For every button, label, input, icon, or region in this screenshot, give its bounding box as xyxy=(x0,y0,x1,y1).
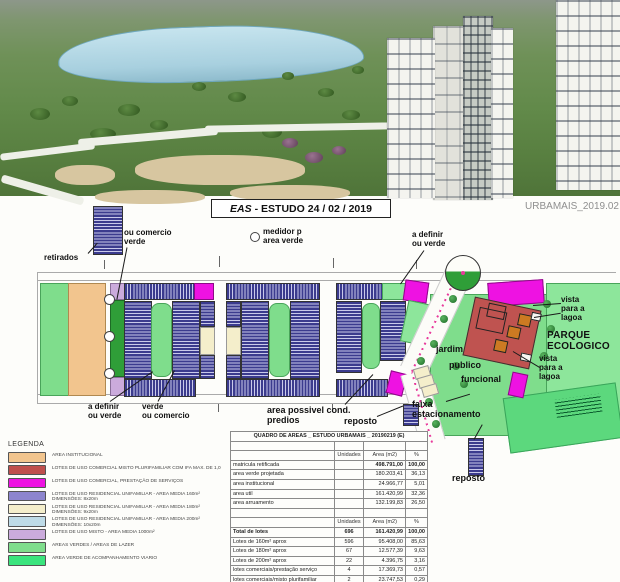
annotation-ou-comercio-verde: ou comercio verde xyxy=(124,229,172,247)
row-label: Lotes de 200m² aprox xyxy=(231,556,335,566)
lot-column-hatched xyxy=(172,301,200,379)
areas-table: QUADRO DE AREAS _ ESTUDO URBAMAIS _ 2019… xyxy=(230,431,428,582)
legend-item: LOTES DE USO MISTO - AREA MEDIA 1000m² xyxy=(8,529,223,542)
green-area xyxy=(40,283,70,396)
annotation-vista-lagoa-2: vista para a lagoa xyxy=(539,355,563,382)
dimension-tick xyxy=(218,404,219,412)
legend-item: LOTES DE USO RESIDENCIAL UNIFAMILIAR - A… xyxy=(8,516,223,529)
lot-column-hatched xyxy=(200,355,215,379)
commercial-lot xyxy=(194,283,214,300)
annotation-publico: publico xyxy=(449,360,481,370)
dimension-tick xyxy=(104,260,105,269)
lot-row-hatched xyxy=(124,283,196,300)
row-unidades xyxy=(334,460,364,470)
green-oval xyxy=(269,303,290,377)
roundabout-center-dot xyxy=(461,271,465,275)
row-unidades xyxy=(334,499,364,509)
legend-item: LOTES DE USO COMERCIAL MISTO PLURIFAMILI… xyxy=(8,465,223,478)
row-area: 17.369,73 xyxy=(364,566,406,576)
lot-row-hatched xyxy=(226,379,320,397)
medidor-icon xyxy=(104,294,115,305)
row-pct: 5,01 xyxy=(405,479,427,489)
roundabout xyxy=(445,255,481,291)
lot-row-hatched xyxy=(226,283,320,300)
row-unidades: 67 xyxy=(334,547,364,557)
legend-label: LOTES DE USO RESIDENCIAL UNIFAMILIAR - A… xyxy=(52,516,200,529)
annotation-retirados: retirados xyxy=(44,254,78,263)
green-oval xyxy=(151,303,172,377)
row-unidades xyxy=(334,479,364,489)
row-area: 498.791,00 xyxy=(364,460,406,470)
row-pct: 26,50 xyxy=(405,499,427,509)
green-oval xyxy=(362,303,380,369)
medidor-icon xyxy=(104,331,115,342)
annotation-faixa-estacionamento: faixa estacionamento xyxy=(412,399,481,419)
legend-items: AREA INSTITUCIONAL LOTES DE USO COMERCIA… xyxy=(8,452,223,568)
cream-lot xyxy=(200,327,215,355)
table-row: Lotes de 200m² aprox 22 4.396,75 3,16 xyxy=(231,556,428,566)
annotation-jardim: jardim xyxy=(436,344,463,354)
row-pct: 36,13 xyxy=(405,470,427,480)
row-area: 95.408,00 xyxy=(364,537,406,547)
leader-line xyxy=(377,406,403,417)
row-area: 161.420,99 xyxy=(364,527,406,537)
tree-icon xyxy=(192,82,206,91)
col-blank xyxy=(231,451,335,461)
row-pct: 85,63 xyxy=(405,537,427,547)
lot-column-hatched xyxy=(290,301,320,379)
legend-swatch xyxy=(8,491,46,502)
col-pct: % xyxy=(405,451,427,461)
legend: LEGENDA AREA INSTITUCIONAL LOTES DE USO … xyxy=(8,441,223,568)
legend-swatch xyxy=(8,516,46,527)
lot-column-hatched xyxy=(226,355,241,379)
legend-label: LOTES DE USO RESIDENCIAL UNIFAMILIAR - A… xyxy=(52,491,200,504)
row-area: 161.420,99 xyxy=(364,489,406,499)
tower-building xyxy=(491,28,513,198)
tree-icon xyxy=(342,110,360,120)
legend-swatch xyxy=(8,478,46,489)
col-pct: % xyxy=(405,518,427,528)
annotation-a-definir-top: a definir ou verde xyxy=(412,231,445,249)
legend-item: AREAS VERDES / AREAS DE LAZER xyxy=(8,542,223,555)
commercial-lot xyxy=(403,279,430,303)
row-label: area verde projetada xyxy=(231,470,335,480)
table-row: Lotes de 180m² aprox 67 12.577,39 9,63 xyxy=(231,547,428,557)
row-area: 12.577,39 xyxy=(364,547,406,557)
sand-area xyxy=(95,190,205,204)
tiny-note-block xyxy=(554,394,602,418)
annotation-reposto-right: reposto xyxy=(452,473,485,483)
row-pct: 100,00 xyxy=(405,527,427,537)
annotation-parque-ecologico: PARQUE ECOLOGICO xyxy=(547,330,610,352)
row-area: 24.966,77 xyxy=(364,479,406,489)
legend-swatch xyxy=(8,555,46,566)
lot-column-hatched xyxy=(336,301,362,373)
lagoon xyxy=(57,21,365,88)
row-area: 132.199,83 xyxy=(364,499,406,509)
row-unidades xyxy=(334,470,364,480)
col-area: Area (m2) xyxy=(364,451,406,461)
annotation-funcional: funcional xyxy=(461,374,501,384)
sheet-title: EAS - ESTUDO 24 / 02 / 2019 xyxy=(211,199,391,218)
legend-title: LEGENDA xyxy=(8,441,223,448)
dimension-tick xyxy=(219,256,220,267)
lot-column-hatched xyxy=(241,301,269,379)
row-area: 23.747,53 xyxy=(364,575,406,582)
legend-item: AREA INSTITUCIONAL xyxy=(8,452,223,465)
legend-label: LOTES DE USO COMERCIAL, PRESTAÇÃO DE SER… xyxy=(52,478,183,485)
reposto-lot-strip xyxy=(468,438,484,476)
table-row: area verde projetada 180.203,41 36,13 xyxy=(231,470,428,480)
legend-swatch xyxy=(8,465,46,476)
annotation-reposto-mid: reposto xyxy=(344,416,377,426)
annotation-area-possivel: area possivel cond. predios xyxy=(267,405,351,425)
medidor-icon xyxy=(104,368,115,379)
tree-icon xyxy=(30,108,50,120)
table-row: area util 161.420,99 32,36 xyxy=(231,489,428,499)
row-label: Lotes de 160m² aprox xyxy=(231,537,335,547)
row-pct: 100,00 xyxy=(405,460,427,470)
shrub-icon xyxy=(305,152,323,163)
shrub-icon xyxy=(332,146,346,155)
row-unidades: 596 xyxy=(334,537,364,547)
retirados-lot-strip xyxy=(93,206,123,255)
row-pct: 9,63 xyxy=(405,547,427,557)
tree-icon xyxy=(228,92,246,102)
legend-item: LOTES DE USO COMERCIAL, PRESTAÇÃO DE SER… xyxy=(8,478,223,491)
tower-building xyxy=(556,0,620,190)
table-spacer-row xyxy=(231,441,428,451)
legend-item: LOTES DE USO RESIDENCIAL UNIFAMILIAR - A… xyxy=(8,504,223,517)
tree-icon xyxy=(449,295,457,303)
sand-area xyxy=(135,155,305,185)
medidor-icon xyxy=(250,232,260,242)
table-section-2: Total de lotes 696 161.420,99 100,00 Lot… xyxy=(231,527,428,582)
institutional-area xyxy=(68,283,106,396)
lot-row-hatched xyxy=(336,283,384,300)
dimension-tick xyxy=(333,258,334,268)
urban-study-sheet: EAS - ESTUDO 24 / 02 / 2019 URBAMAIS_201… xyxy=(0,0,620,582)
col-unidades: Unidades xyxy=(334,518,364,528)
lot-column-hatched xyxy=(200,301,215,327)
orange-building xyxy=(506,325,521,339)
tower-building xyxy=(387,38,435,198)
annotation-medidor: medidor p area verde xyxy=(263,228,303,246)
annotation-vista-lagoa-1: vista para a lagoa xyxy=(561,296,585,323)
road-edge-line xyxy=(37,272,38,404)
tree-icon xyxy=(432,420,440,428)
legend-label: LOTES DE USO COMERCIAL MISTO PLURIFAMILI… xyxy=(52,465,221,472)
lot-row-hatched xyxy=(336,379,388,397)
row-label: matricula retificada xyxy=(231,460,335,470)
road xyxy=(205,122,390,132)
row-label: lotes comerciais/prestação serviço xyxy=(231,566,335,576)
title-eas: EAS xyxy=(230,203,252,215)
orange-building xyxy=(493,339,508,353)
row-pct: 32,36 xyxy=(405,489,427,499)
tree-icon xyxy=(352,66,364,74)
table-header-row: Unidades Area (m2) % xyxy=(231,451,428,461)
row-pct: 3,16 xyxy=(405,556,427,566)
lot-column-hatched xyxy=(124,301,152,379)
tree-icon xyxy=(62,96,78,106)
col-area: Area (m2) xyxy=(364,518,406,528)
table-row: area arruamento 132.199,83 26,50 xyxy=(231,499,428,509)
legend-swatch xyxy=(8,529,46,540)
legend-swatch xyxy=(8,504,46,515)
table-header-row: Unidades Area (m2) % xyxy=(231,518,428,528)
annotation-verde-ou-comercio: verde ou comercio xyxy=(142,403,190,421)
row-label: area util xyxy=(231,489,335,499)
tree-icon xyxy=(118,104,140,116)
row-label: Lotes de 180m² aprox xyxy=(231,547,335,557)
row-area: 180.203,41 xyxy=(364,470,406,480)
row-label: Total de lotes xyxy=(231,527,335,537)
title-rest: - ESTUDO 24 / 02 / 2019 xyxy=(255,203,372,215)
shrub-icon xyxy=(282,138,298,148)
legend-swatch xyxy=(8,452,46,463)
tower-building xyxy=(433,26,463,200)
legend-label: LOTES DE USO MISTO - AREA MEDIA 1000m² xyxy=(52,529,155,536)
legend-item: LOTES DE USO RESIDENCIAL UNIFAMILIAR - A… xyxy=(8,491,223,504)
tower-building xyxy=(463,16,493,200)
render-view xyxy=(0,0,620,196)
table-spacer-row xyxy=(231,508,428,518)
road-edge-line xyxy=(38,272,616,273)
watermark: URBAMAIS_2019.02 xyxy=(525,201,619,212)
sand-area xyxy=(55,165,115,185)
row-unidades: 4 xyxy=(334,566,364,576)
legend-label: AREAS VERDES / AREAS DE LAZER xyxy=(52,542,134,549)
row-unidades: 22 xyxy=(334,556,364,566)
lot-column-hatched xyxy=(226,301,241,327)
table-row: Lotes de 160m² aprox 596 95.408,00 85,63 xyxy=(231,537,428,547)
table-row: area institucional 24.966,77 5,01 xyxy=(231,479,428,489)
legend-label: LOTES DE USO RESIDENCIAL UNIFAMILIAR - A… xyxy=(52,504,200,517)
legend-label: AREA VERDE DE ACOMPANHAMENTO VIARIO xyxy=(52,555,157,562)
table-title: QUADRO DE AREAS _ ESTUDO URBAMAIS _ 2019… xyxy=(231,432,428,442)
row-unidades xyxy=(334,489,364,499)
table-title-row: QUADRO DE AREAS _ ESTUDO URBAMAIS _ 2019… xyxy=(231,432,428,442)
row-unidades: 696 xyxy=(334,527,364,537)
legend-swatch xyxy=(8,542,46,553)
legend-item: AREA VERDE DE ACOMPANHAMENTO VIARIO xyxy=(8,555,223,568)
row-label: lotes comerciais/misto plurifamiliar xyxy=(231,575,335,582)
tree-icon xyxy=(150,120,168,130)
legend-label: AREA INSTITUCIONAL xyxy=(52,452,103,459)
row-unidades: 2 xyxy=(334,575,364,582)
tree-icon xyxy=(440,315,448,323)
row-area: 4.396,75 xyxy=(364,556,406,566)
annotation-a-definir-bottom: a definir ou verde xyxy=(88,403,121,421)
table-row: Total de lotes 696 161.420,99 100,00 xyxy=(231,527,428,537)
col-unidades: Unidades xyxy=(334,451,364,461)
row-label: area institucional xyxy=(231,479,335,489)
table-row: lotes comerciais/misto plurifamiliar 2 2… xyxy=(231,575,428,582)
row-pct: 0,57 xyxy=(405,566,427,576)
row-pct: 0,29 xyxy=(405,575,427,582)
table-row: lotes comerciais/prestação serviço 4 17.… xyxy=(231,566,428,576)
table-row: matricula retificada 498.791,00 100,00 xyxy=(231,460,428,470)
orange-building xyxy=(517,313,532,327)
tree-icon xyxy=(417,357,425,365)
tree-icon xyxy=(318,88,334,97)
row-label: area arruamento xyxy=(231,499,335,509)
col-blank xyxy=(231,518,335,528)
table-section-1: matricula retificada 498.791,00 100,00 a… xyxy=(231,460,428,508)
tree-icon xyxy=(282,72,294,80)
cream-lot xyxy=(226,327,241,355)
